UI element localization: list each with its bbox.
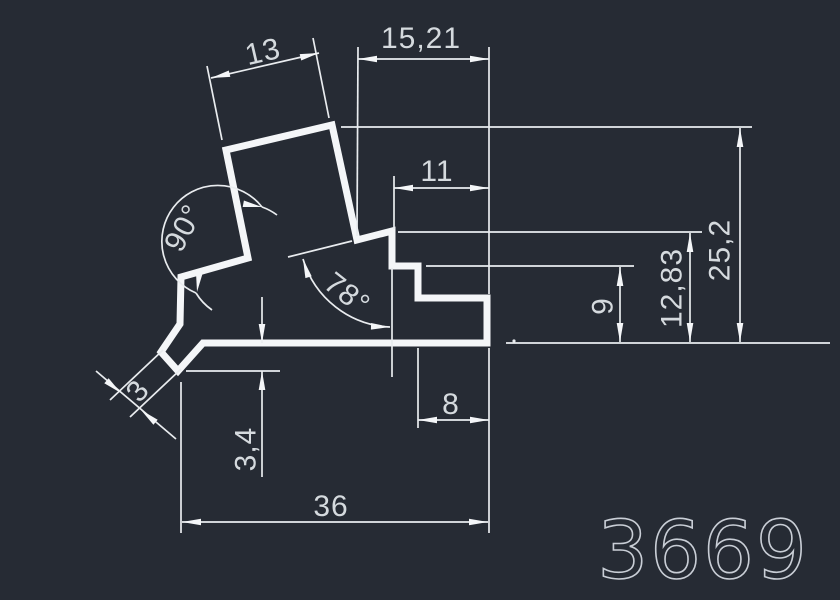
dim-label-3-4: 3,4 [230, 427, 263, 472]
dimension-labels: 13 15,21 11 25,2 12,83 9 8 36 3,4 3 90° … [120, 22, 737, 523]
dim-label-15-21: 15,21 [381, 22, 461, 55]
arrow-icon [470, 185, 489, 192]
arrow-icon [182, 519, 201, 526]
arrow-icon [141, 410, 158, 425]
dim-label-12-83: 12,83 [656, 248, 689, 328]
arrow-icon [259, 371, 266, 390]
dim-label-36: 36 [313, 490, 348, 523]
angle-arc-tail [262, 207, 277, 215]
dimension-8 [418, 348, 489, 533]
dim-label-13: 13 [242, 32, 284, 72]
arrow-icon [617, 323, 624, 342]
dimension-arrows [104, 53, 743, 525]
arrow-icon [617, 267, 624, 286]
angle-label-78: 78° [318, 266, 376, 322]
dim-label-11: 11 [420, 155, 453, 188]
dimension-lines [96, 38, 830, 533]
arrow-icon [211, 71, 230, 79]
arrow-icon [418, 417, 437, 424]
arrow-icon [737, 128, 744, 147]
dim-label-3: 3 [120, 374, 157, 409]
dim-label-25-2: 25,2 [704, 219, 737, 281]
arrow-icon [469, 519, 488, 526]
arrow-icon [394, 185, 413, 192]
arrow-icon [358, 56, 377, 63]
arrow-icon [104, 378, 121, 393]
arrow-icon [196, 273, 203, 292]
part-number: 3669 [597, 504, 809, 597]
arrow-icon [470, 417, 489, 424]
angle-arc-tail [196, 293, 212, 310]
angle-leg [288, 241, 352, 257]
arrow-icon [737, 323, 744, 342]
cad-viewport[interactable]: 13 15,21 11 25,2 12,83 9 8 36 3,4 3 90° … [0, 0, 840, 600]
dimension-25-2 [341, 127, 830, 343]
dim-label-9: 9 [587, 297, 620, 315]
reference-dot [512, 339, 515, 342]
arrow-icon [470, 56, 489, 63]
extension-line [357, 47, 358, 236]
angle-label-90: 90° [158, 199, 210, 257]
arrow-icon [303, 259, 312, 278]
cad-canvas: 13 15,21 11 25,2 12,83 9 8 36 3,4 3 90° … [0, 0, 840, 600]
dim-label-8: 8 [442, 388, 460, 421]
extension-line [313, 38, 329, 118]
